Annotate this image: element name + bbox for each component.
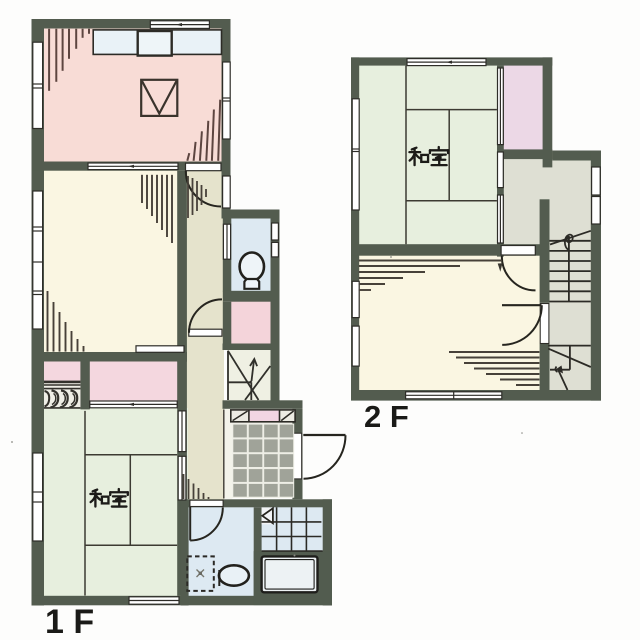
svg-text:2 F: 2 F xyxy=(364,399,409,434)
svg-text:1 F: 1 F xyxy=(45,603,94,640)
